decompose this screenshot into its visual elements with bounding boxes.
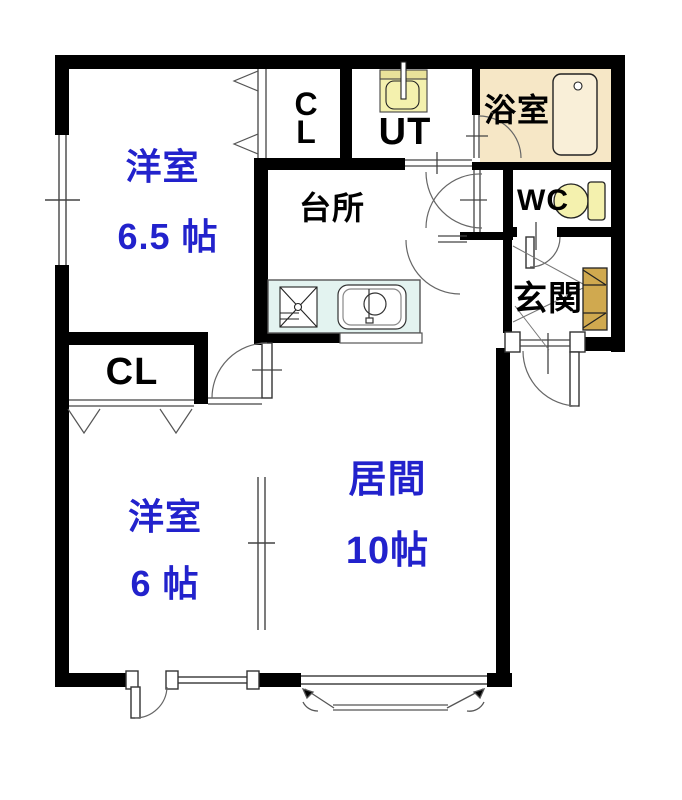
entrance-label: 玄関 <box>510 282 586 318</box>
kitchen-label: 台所 <box>296 192 368 226</box>
utility-label: UT <box>372 113 438 153</box>
kitchen-counter <box>268 280 422 343</box>
floor-plan: 洋室 6.5 帖 C L UT 浴室 台所 WC 玄関 CL 洋室 6 帖 居間… <box>0 0 682 800</box>
wc-label: WC <box>513 185 573 217</box>
casement-window-symbol <box>303 689 484 711</box>
living-room-size: 10帖 <box>315 532 460 572</box>
living-room-label: 居間 <box>315 461 460 501</box>
bathroom-label: 浴室 <box>482 94 552 128</box>
kitchen-sink-icon <box>338 285 406 329</box>
bathtub-icon <box>553 74 597 155</box>
closet-lower-label: CL <box>98 353 166 393</box>
western-room-2-size: 6 帖 <box>95 565 235 603</box>
stove-icon <box>280 287 317 327</box>
western-room-2-label: 洋室 <box>95 498 235 536</box>
floor-plan-drawing <box>0 0 682 800</box>
western-room-1-label: 洋室 <box>90 148 235 186</box>
shoe-cabinet-icon <box>583 268 607 330</box>
western-room-1-size: 6.5 帖 <box>88 218 248 256</box>
closet-upper-label: C L <box>288 90 324 146</box>
washing-machine-pan-icon <box>380 62 427 112</box>
